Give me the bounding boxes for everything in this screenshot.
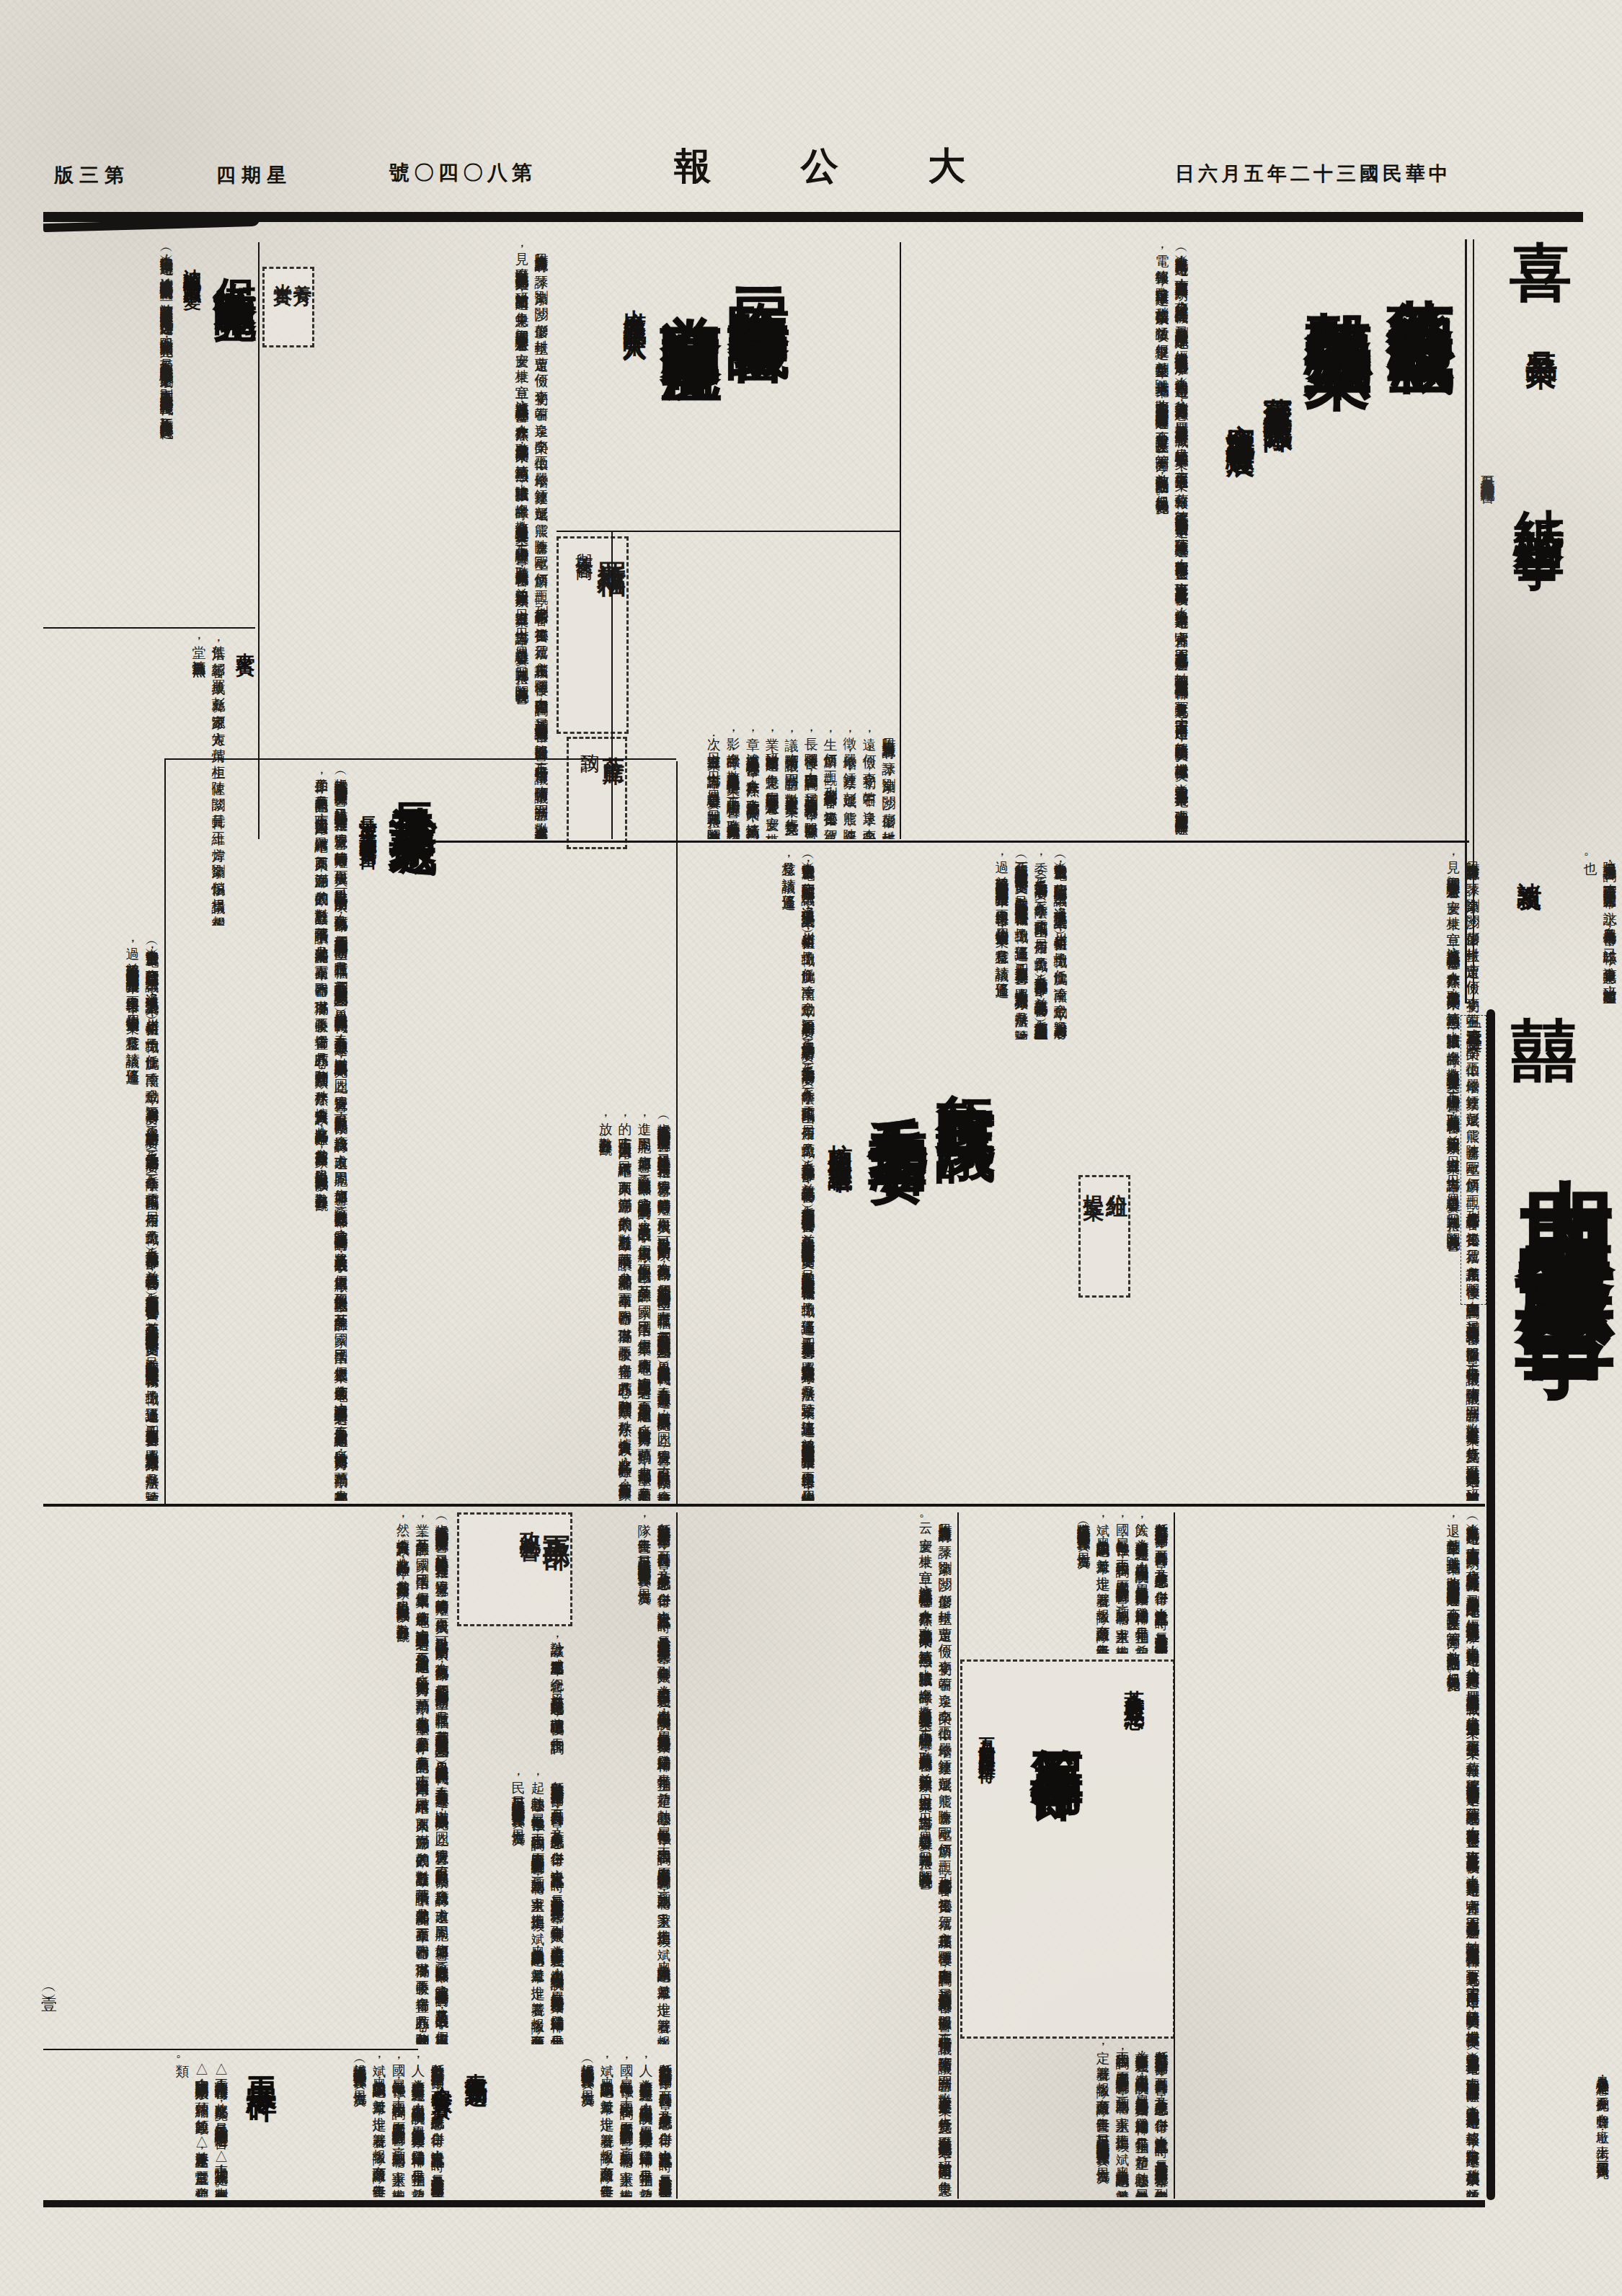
soap-ad-headline: 大朋皂廠緊要啓事 <box>1501 1097 1616 2056</box>
divider-council-right <box>900 242 901 839</box>
youth-pre-body: 各縣教育民衆五日下午舉行本屆青年節，五月份國民月會，及革命政府成立紀念，合併舉行… <box>960 1512 1171 1654</box>
headline-exhibition-tidbits: 工展零碎 <box>238 2053 277 2197</box>
changsha-body-right: （本報特寫）轟動多時的長沙市手工業產品展覽會，已於昨日午後二時舉行揭幕典禮，這一… <box>170 767 350 1501</box>
military-body: 計分該處，成立於兩週五年，紀念會，日前在長沙某地舉行紀念週，恭讀總理遺囑後，由長… <box>460 1631 567 1760</box>
rule-above-tidbits <box>43 2049 418 2050</box>
wedding-title: 結婚啓事 <box>1504 470 1564 845</box>
soap-ad-joy-character: 囍 <box>1511 1018 1582 1084</box>
military-column-cont: 各縣教育民衆五日下午舉行本屆青年節，五月份國民月會，及革命政府成立紀念，合併舉行… <box>460 1770 567 2044</box>
assembly-coverage-body: 昨日出席參議員計有：詠琴，劉沛泉，沙閱，廖彭僧，封軼生，曹定遠，何儉，李燮初，韓… <box>1076 851 1482 1501</box>
headline-poland: 保衛波蘭完整 <box>205 244 257 546</box>
bottom-left-body: （本報特寫）轟動多時的長沙市手工業產品展覽會，已於昨日午後二時舉行揭幕典禮，這一… <box>45 1512 451 2044</box>
bottom-mid-body: 昨日出席參議員計有：詠琴，劉沛泉，沙閱，廖彭僧，封軼生，曹定遠，何儉，李燮初，韓… <box>679 1512 954 2197</box>
youth-day-tag: 革命政府成立紀念 <box>1119 1674 1145 1905</box>
soap-ad-divider <box>1486 1009 1495 2200</box>
headline-council-line1: 二屆臨時參議會 <box>719 244 790 719</box>
divider-exec-left <box>676 761 678 1504</box>
rule-above-changsha <box>166 758 676 760</box>
council-names-body: 昨日出席參議員計有：詠琴，劉沛泉，沙閱，廖彭僧，封軼生，曹定遠，何儉，李燮初，韓… <box>630 727 898 839</box>
headline-youth-week: 青年運動週 <box>458 2055 489 2199</box>
subhead-exec: 核定全國生產會議名單 <box>822 1125 854 1456</box>
council-reply-notes: 陳參議員嘉會答詞，略謂今日第二屆第一次大會開幕，永誌，奧義及籌備會畢，已誌昨報，… <box>1472 851 1619 1003</box>
headline-council-line2: 首次會開幕盛況 <box>652 265 722 741</box>
headline-air-battle-line2: 擊落德機六十五架 <box>1296 257 1373 855</box>
divider-poland-right <box>258 242 260 839</box>
headline-youth-day: 第五屆青年節 <box>1021 1706 1084 2023</box>
soap-ad-note: 各界熱心提倡之雅意，發不在此例，合并聲明。廠址：上太平街 電報掛號一四九一 <box>1504 2066 1612 2196</box>
roosevelt-box: 羅斯福 與英使會商 <box>557 536 629 734</box>
divider-bottom-a <box>676 1512 678 2199</box>
wedding-joy-character: 喜 <box>1510 242 1576 304</box>
main-horizontal-rule-mid <box>43 1504 1485 1507</box>
military-commemoration-label: 政紀念會 <box>520 1515 541 1624</box>
headline-exec-line2: 毛秉文任湘省委 <box>859 1068 927 1522</box>
headline-ballgame-today: 今舉行球賽 <box>427 2070 453 2193</box>
masthead-rule <box>43 212 1583 222</box>
chairman-speech-title: 薛主席 <box>603 739 626 847</box>
divider-bottom-b <box>957 1512 959 2199</box>
grouping-label: 分組 <box>1106 1177 1129 1295</box>
subhead-tunisia-advance: 突境北路盟軍續有進展 <box>1220 401 1256 747</box>
rule-under-poland <box>43 627 255 629</box>
subhead-youth-day: 五月份國民月會昨併舉行 <box>975 1724 996 2027</box>
headline-changsha: 長沙是工業之城 <box>381 764 437 1125</box>
small-label-line2: 米實 <box>272 269 292 345</box>
divider-changsha-left <box>164 758 166 1504</box>
left-margin-body: （中央社）重慶四日電，行政院四日開第六一二次會議，通過「任免事項決議案」，（一）… <box>45 937 161 1501</box>
basketball-body: 各縣教育民衆五日下午舉行本屆青年節，五月份國民月會，及革命政府成立紀念，合併舉行… <box>281 2053 447 2197</box>
grouping-proposals-box: 分組 提案 <box>1078 1175 1130 1298</box>
changsha-body-under: （本報特寫）轟動多時的長沙市手工業產品展覽會，已於昨日午後二時舉行揭幕典禮，這一… <box>355 1112 673 1501</box>
bottom-rule <box>43 2200 1485 2207</box>
subhead-soviet-attack: 蘇軍猛攻羅斯托夫敵陣 <box>1257 375 1293 721</box>
newspaper-page: 版三第 四期星 號〇四〇八第 報 公 大 日六月五年二十三國民華中 喜 吳晉榮 … <box>0 0 1622 2296</box>
poland-body: （中央社）倫敦四日路透電，波總統拉基維茲頃向波蘭人民宣稱，「波蘭之政策將永不離開… <box>48 244 176 624</box>
headline-exec-line1: 行政院昨日決議 <box>927 1048 995 1502</box>
military-dept-label: 軍政部 <box>541 1515 570 1624</box>
exec-pre-body: （中央社）重慶四日電，行政院四日開第六一二次會議，通過「任免事項決議案」，（一）… <box>822 851 1070 1040</box>
guest-list-label: 來賓 <box>231 637 255 724</box>
air-battle-body: （中央社）莫斯科三日路透電，庫班方面蘇軍已因其與伊朗，蘇飛行員所駕駛之美轟炸機，… <box>903 244 1191 838</box>
exec-body: （中央社）重慶四日電，行政院四日開第六一二次會議，通過「任免事項決議案」，（一）… <box>682 851 817 1501</box>
masthead-issue-number: 號〇四〇八第 <box>389 159 536 187</box>
subhead-changsha: 長沙市手工業產品展覽會第一日 <box>355 802 378 1119</box>
roosevelt-box-sub: 與英使會商 <box>572 538 596 732</box>
masthead-title: 報 公 大 <box>674 141 991 192</box>
masthead-edition: 版三第 <box>54 162 130 188</box>
small-label-box: 養方 米實 <box>262 267 314 347</box>
chairman-speech-box: 薛主席 致詞 <box>567 737 627 849</box>
wedding-names: 吳晉榮 <box>1515 326 1559 484</box>
exhibition-tidbits-body: △王市長主持開幕報告時稱，「此次不是展覽，是長沙手工業的總檢閱」確是名言。△中正… <box>45 2053 231 2197</box>
page-section-marker: （壹） <box>39 1982 61 2069</box>
subhead-poland: 波總統申述國策不變 <box>179 254 202 484</box>
bottom-right-body: （中央社）莫斯科三日路透電，庫班方面蘇軍已因其與伊朗，蘇飛行員所駕駛之美轟炸機，… <box>1175 1512 1482 2197</box>
main-horizontal-rule-top <box>425 841 1469 843</box>
rule-above-roosevelt <box>557 531 900 532</box>
proposals-label: 提案 <box>1083 1177 1106 1295</box>
sports-body: 各縣教育民衆五日下午舉行本屆青年節，五月份國民月會，及革命政府成立紀念，合併舉行… <box>495 2053 675 2197</box>
masthead-date: 日六月五年二十三國民華中 <box>1175 161 1452 187</box>
divider-council-left <box>611 532 613 839</box>
chairman-speech-sub: 致詞 <box>577 739 603 847</box>
bottom-col-body: 各縣教育民衆五日下午舉行本屆青年節，五月份國民月會，及革命政府成立紀念，合併舉行… <box>574 1512 673 2044</box>
youth-post-body: 各縣教育民衆五日下午舉行本屆青年節，五月份國民月會，及革命政府成立紀念，合併舉行… <box>960 2040 1171 2197</box>
masthead-weekday: 四期星 <box>216 162 292 188</box>
military-dept-box: 軍政部 政紀念會 <box>457 1512 572 1626</box>
small-label-line1: 養方 <box>293 269 312 345</box>
headline-air-battle-line1: 蘇德發生激烈空戰 <box>1378 244 1455 842</box>
